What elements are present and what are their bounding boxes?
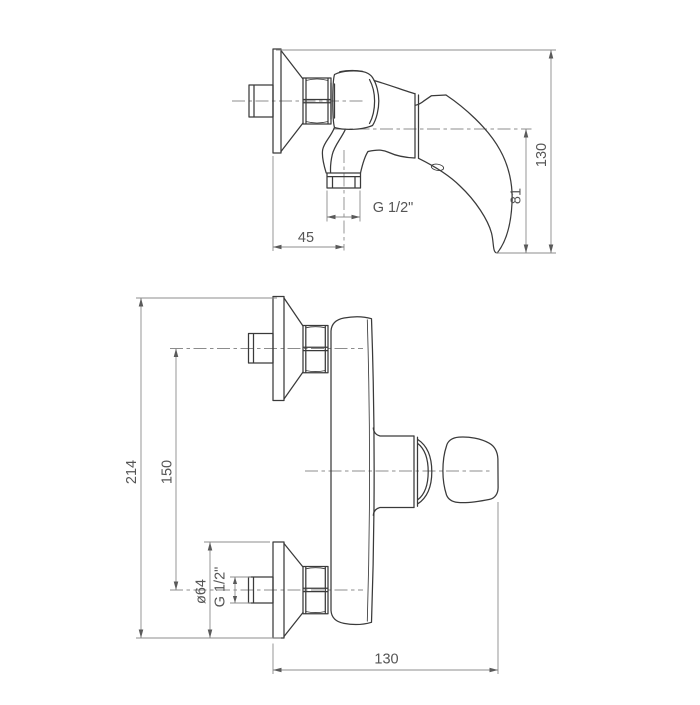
plan-view: 214 150 ø64 G 1/2" 130 [124, 297, 498, 675]
handle-knob [443, 437, 498, 503]
dim-label-outlet-thread: G 1/2" [373, 200, 414, 216]
dim-label-side-height: 130 [534, 143, 550, 167]
hex-nut [303, 326, 328, 373]
arrow-up-icon [139, 298, 144, 307]
arrow-up-icon [208, 542, 213, 551]
dim-label-wall-offset: 45 [298, 230, 314, 246]
arrow-left-icon [273, 668, 282, 673]
dim-label-escutcheon-diameter: ø64 [194, 579, 210, 604]
drawing-canvas: 130 81 G 1/2" 45 [0, 0, 700, 700]
arrow-up-icon [524, 129, 529, 138]
arrow-left-icon [327, 215, 336, 220]
arrow-right-icon [490, 668, 499, 673]
cartridge-housing [333, 71, 379, 129]
lever-screw-plug [431, 163, 444, 171]
lever-peak [415, 95, 446, 105]
dim-label-overall-height: 214 [124, 460, 140, 484]
arrow-down-icon [233, 596, 237, 603]
side-view: 130 81 G 1/2" 45 [232, 49, 556, 253]
body-face-inner-arc [367, 320, 369, 621]
arrow-up-icon [174, 349, 179, 358]
side-view-centerlines [232, 101, 532, 251]
arrow-down-icon [208, 630, 213, 639]
side-lever-handle [415, 95, 512, 253]
arrow-right-icon [352, 215, 361, 220]
dim-label-inlet-thread: G 1/2" [213, 567, 229, 608]
dim-label-projection-length: 130 [374, 652, 398, 668]
arrow-up-icon [549, 50, 554, 59]
arrow-left-icon [273, 245, 282, 250]
arrow-up-icon [233, 577, 237, 584]
hex-nut-facets [306, 327, 326, 372]
dim-label-inlet-spacing: 150 [160, 460, 176, 484]
technical-drawing: 130 81 G 1/2" 45 [0, 0, 700, 700]
cartridge-collar [414, 436, 432, 508]
arrow-down-icon [139, 630, 144, 639]
plan-view-dimensions: 214 150 ø64 G 1/2" 130 [124, 298, 498, 674]
spout-neck [322, 128, 368, 174]
arrow-down-icon [174, 582, 179, 591]
arrow-right-icon [336, 245, 345, 250]
arrow-down-icon [549, 245, 554, 254]
lever-outer-edge [446, 95, 512, 253]
dim-label-outlet-height: 81 [509, 188, 525, 204]
lever-inner-edge [419, 158, 498, 253]
cartridge-step [373, 428, 414, 515]
arrow-down-icon [524, 245, 529, 254]
